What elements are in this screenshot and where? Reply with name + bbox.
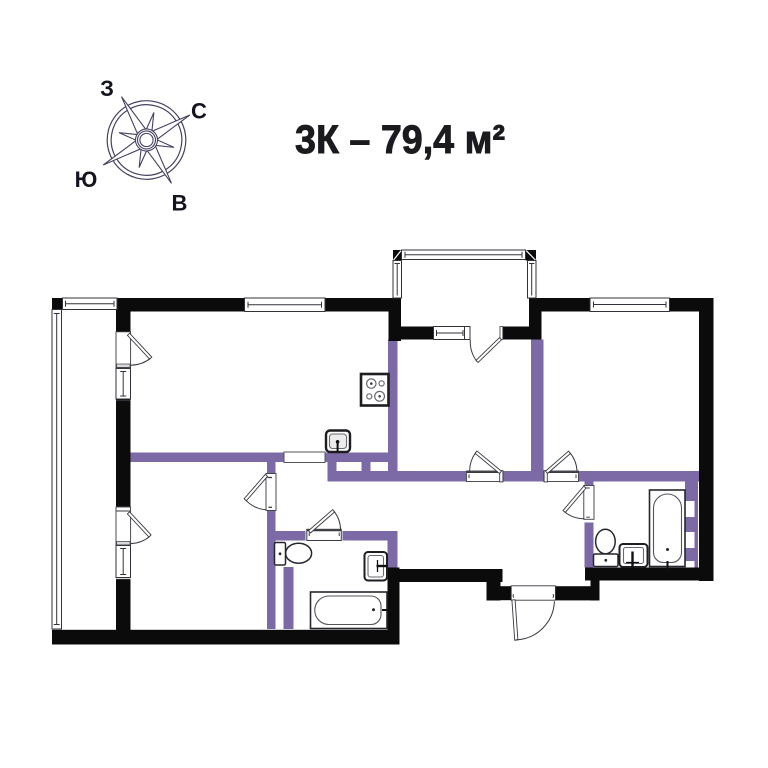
svg-text:З: З (100, 76, 114, 101)
svg-text:Ю: Ю (75, 167, 98, 192)
svg-text:В: В (172, 191, 188, 216)
svg-text:С: С (191, 99, 207, 124)
svg-text:3К – 79,4 м²: 3К – 79,4 м² (295, 118, 505, 162)
